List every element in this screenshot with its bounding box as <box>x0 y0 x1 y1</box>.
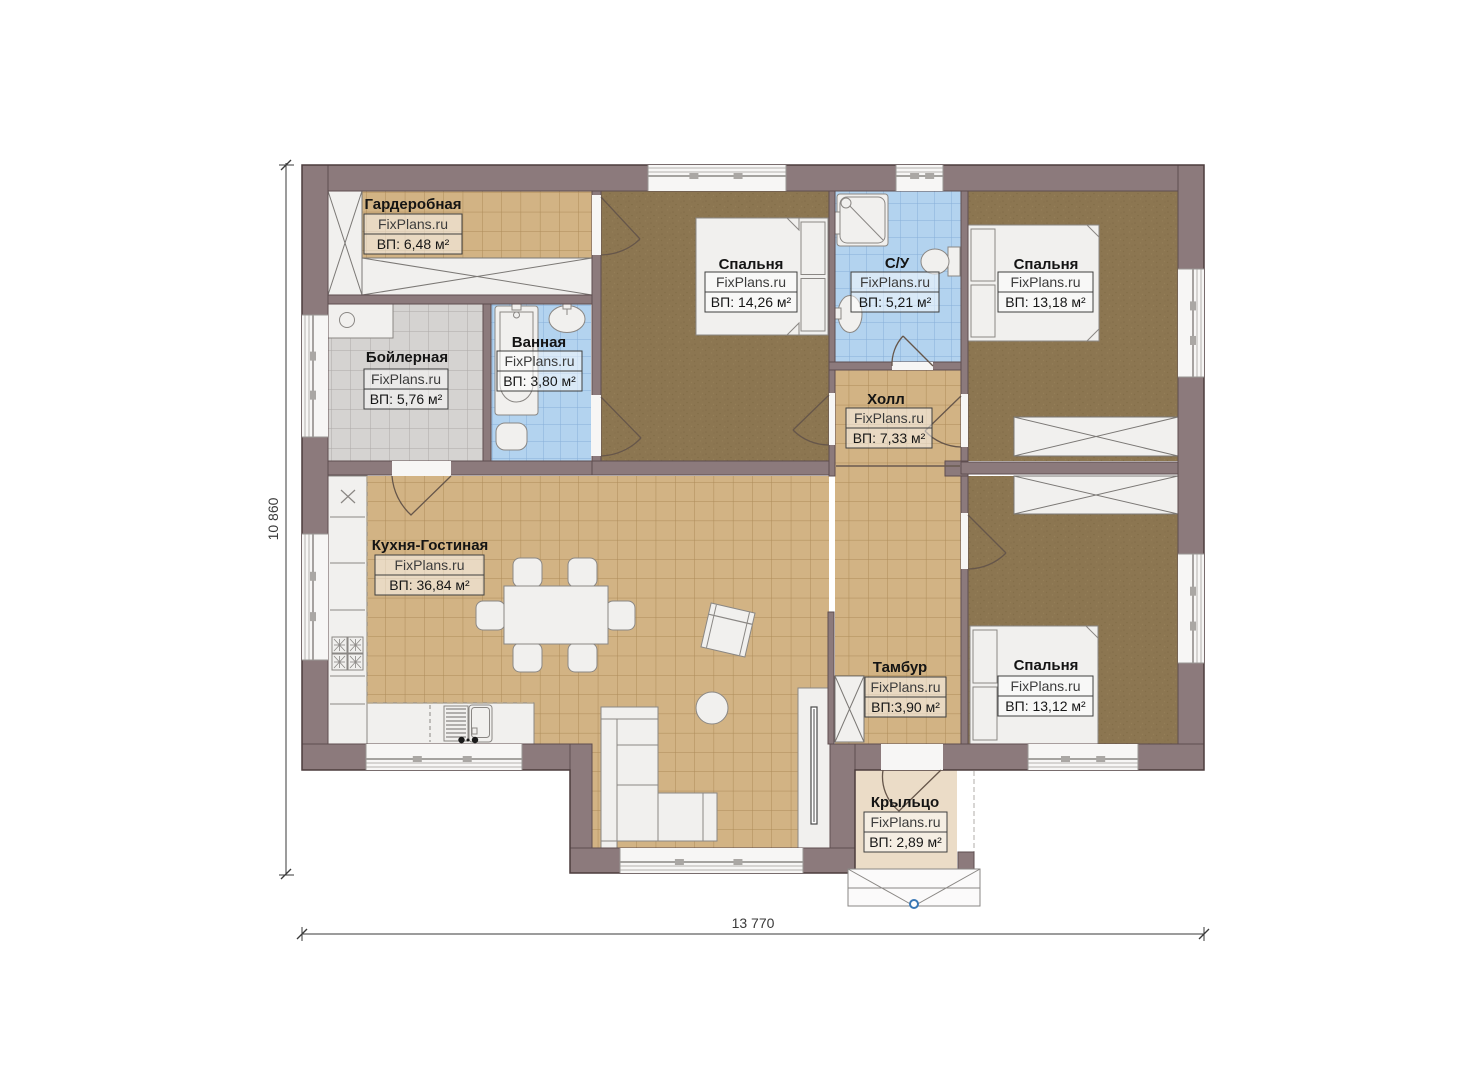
svg-text:Спальня: Спальня <box>1014 256 1079 273</box>
svg-text:ВП: 36,84 м²: ВП: 36,84 м² <box>389 577 470 593</box>
svg-text:ВП: 2,89 м²: ВП: 2,89 м² <box>869 834 942 850</box>
svg-text:ВП: 6,48 м²: ВП: 6,48 м² <box>377 236 450 252</box>
svg-text:ВП: 14,26 м²: ВП: 14,26 м² <box>711 294 792 310</box>
svg-text:ВП: 13,12 м²: ВП: 13,12 м² <box>1005 698 1086 714</box>
svg-text:Тамбур: Тамбур <box>873 659 927 676</box>
svg-text:FixPlans.ru: FixPlans.ru <box>504 353 574 369</box>
svg-text:С/У: С/У <box>885 255 910 272</box>
svg-text:Гардеробная: Гардеробная <box>364 196 461 213</box>
svg-text:Ванная: Ванная <box>512 334 566 351</box>
svg-text:13 770: 13 770 <box>732 915 775 931</box>
svg-text:Крыльцо: Крыльцо <box>871 794 939 811</box>
svg-text:FixPlans.ru: FixPlans.ru <box>394 557 464 573</box>
svg-text:FixPlans.ru: FixPlans.ru <box>870 679 940 695</box>
svg-text:ВП: 13,18 м²: ВП: 13,18 м² <box>1005 294 1086 310</box>
svg-text:Кухня-Гостиная: Кухня-Гостиная <box>372 537 489 554</box>
svg-text:FixPlans.ru: FixPlans.ru <box>870 814 940 830</box>
svg-text:10 860: 10 860 <box>265 497 281 540</box>
svg-text:FixPlans.ru: FixPlans.ru <box>378 216 448 232</box>
svg-text:FixPlans.ru: FixPlans.ru <box>1010 274 1080 290</box>
svg-text:ВП: 5,21 м²: ВП: 5,21 м² <box>859 294 932 310</box>
svg-text:FixPlans.ru: FixPlans.ru <box>860 274 930 290</box>
svg-text:ВП: 3,80 м²: ВП: 3,80 м² <box>503 373 576 389</box>
svg-text:FixPlans.ru: FixPlans.ru <box>371 371 441 387</box>
svg-text:Холл: Холл <box>867 391 905 408</box>
svg-text:Спальня: Спальня <box>719 256 784 273</box>
svg-text:FixPlans.ru: FixPlans.ru <box>716 274 786 290</box>
svg-text:ВП:3,90 м²: ВП:3,90 м² <box>871 699 940 715</box>
svg-text:ВП: 7,33 м²: ВП: 7,33 м² <box>853 430 926 446</box>
svg-text:Спальня: Спальня <box>1014 657 1079 674</box>
svg-text:FixPlans.ru: FixPlans.ru <box>854 410 924 426</box>
svg-text:FixPlans.ru: FixPlans.ru <box>1010 678 1080 694</box>
svg-text:ВП: 5,76 м²: ВП: 5,76 м² <box>370 391 443 407</box>
svg-text:Бойлерная: Бойлерная <box>366 349 448 366</box>
